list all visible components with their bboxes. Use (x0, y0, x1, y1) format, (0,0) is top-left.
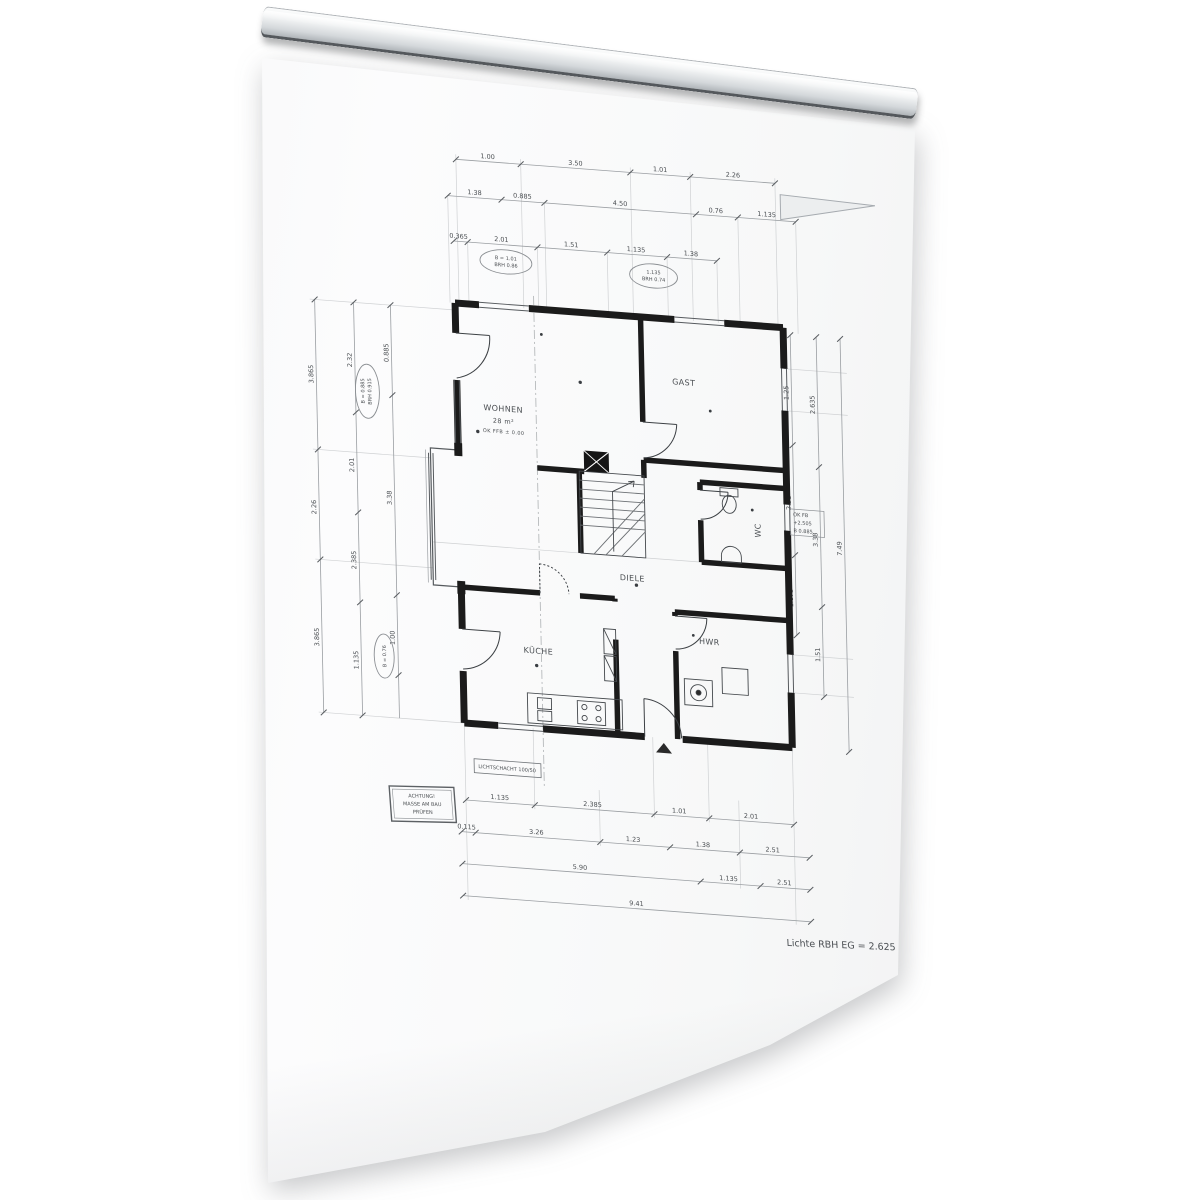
dim-label: 0.885 (382, 343, 390, 362)
room-label-hwr: HWR (699, 637, 720, 648)
interior-walls (455, 303, 792, 748)
dim-label: 1.01 (653, 165, 668, 174)
dim-label: 1.38 (467, 188, 482, 197)
dim-label: 0.365 (449, 232, 468, 241)
hwr-appliances (684, 665, 749, 710)
section-line (534, 296, 545, 786)
dim-label: 3.865 (307, 364, 315, 383)
dimension-labels: 1.00 3.50 1.01 2.26 1.38 0.885 4.50 0.76… (302, 139, 852, 924)
dim-label: 1.135 (627, 245, 646, 254)
dim-label: 1.51 (564, 240, 579, 249)
dim-label: 2.32 (346, 352, 354, 367)
dim-label: 3.38 (386, 490, 394, 505)
oval-stamp-text: B = 0.76 (382, 645, 388, 667)
annotation-line: +2.505 (793, 520, 812, 527)
room-label-wc: WC (754, 523, 763, 538)
dim-label: 2.385 (583, 800, 602, 809)
oval-stamp-text: BRH 0.915 (367, 378, 374, 405)
ceiling-height-note: Lichte RBH EG = 2.625 (786, 938, 896, 953)
dim-label: 1.00 (480, 152, 495, 161)
dim-label: 2.26 (726, 171, 741, 180)
dim-label: 2.26 (310, 500, 318, 515)
dim-label: 3.50 (568, 159, 583, 168)
dim-label: 5.90 (573, 863, 588, 872)
dim-label: 1.135 (757, 210, 776, 219)
dim-label: 3.26 (529, 828, 544, 837)
chimney (584, 450, 609, 473)
exterior-walls (455, 303, 792, 748)
stamp-line-3: PRÜFEN (413, 808, 434, 815)
dim-label: 4.50 (613, 199, 628, 208)
room-label-wohnen: WOHNEN (483, 403, 523, 415)
oval-value-stamps: B = 1.01 BRH 0.86 1.135 BRH 0.74 B = 0.8… (352, 238, 687, 700)
caution-stamp: ACHTUNG! MASSE AM BAU PRÜFEN (389, 786, 456, 823)
shaft-label-text: LICHTSCHACHT 100/50 (478, 764, 536, 774)
oval-stamp-text: 1.135 (646, 269, 660, 276)
dim-label: 1.51 (814, 647, 822, 662)
dim-label: 1.00 (389, 630, 397, 645)
oval-stamp-text: B = 0.885 (360, 378, 367, 404)
oval-stamp-text: BRH 0.74 (642, 276, 665, 284)
dim-label: 2.51 (765, 845, 780, 854)
dim-label: 1.135 (719, 874, 738, 883)
annotation-line: B 0.885 (793, 528, 812, 535)
windows (422, 298, 795, 750)
room-label-diele: DIELE (620, 573, 645, 584)
dim-label: 3.865 (313, 627, 321, 646)
dim-label: 1.135 (352, 650, 360, 669)
dim-label: 1.01 (672, 807, 687, 816)
dim-total-label: 9.41 (629, 899, 644, 908)
room-area-wohnen: 28 m² (493, 417, 514, 427)
dim-label: 1.23 (626, 835, 641, 844)
floor-plan-drawing: 1.00 3.50 1.01 2.26 1.38 0.885 4.50 0.76… (276, 127, 993, 1040)
dim-label: 0.76 (708, 206, 723, 215)
dim-label: 7.49 (836, 541, 844, 556)
room-labels: WOHNEN 28 m² OK FFB ± 0.00 GAST KÜCHE DI… (481, 363, 765, 673)
dim-label: 2.01 (348, 457, 356, 472)
dim-label: 1.135 (490, 793, 509, 802)
shaft-label-box: LICHTSCHACHT 100/50 (474, 759, 541, 778)
dim-label: 2.01 (744, 812, 759, 821)
oval-stamp-text: BRH 0.86 (494, 262, 517, 270)
dim-label: 1.38 (684, 249, 699, 258)
dim-label: 2.01 (494, 235, 509, 244)
room-level-wohnen: OK FFB ± 0.00 (483, 428, 525, 437)
dim-label: 0.115 (457, 822, 476, 831)
dim-label: 2.385 (350, 550, 358, 569)
dim-label: 2.51 (777, 878, 792, 887)
doors (456, 333, 734, 743)
room-label-gast: GAST (672, 377, 695, 388)
dim-label: 1.38 (696, 840, 711, 849)
entrance-arrow (656, 742, 672, 753)
staircase (579, 471, 646, 558)
dim-label: 0.885 (513, 192, 532, 201)
kitchen-counter (526, 623, 623, 730)
wc-fixtures (720, 488, 742, 564)
wall-photo-scene: 1.00 3.50 1.01 2.26 1.38 0.885 4.50 0.76… (0, 0, 1200, 1200)
bay-wall-stubs (454, 443, 465, 595)
dim-label: 2.635 (808, 395, 816, 414)
room-label-kueche: KÜCHE (524, 645, 554, 657)
stamp-line-1: ACHTUNG! (408, 793, 435, 800)
annotation-line: OK FB (793, 512, 809, 519)
stamp-line-2: MASSE AM BAU (403, 801, 442, 808)
